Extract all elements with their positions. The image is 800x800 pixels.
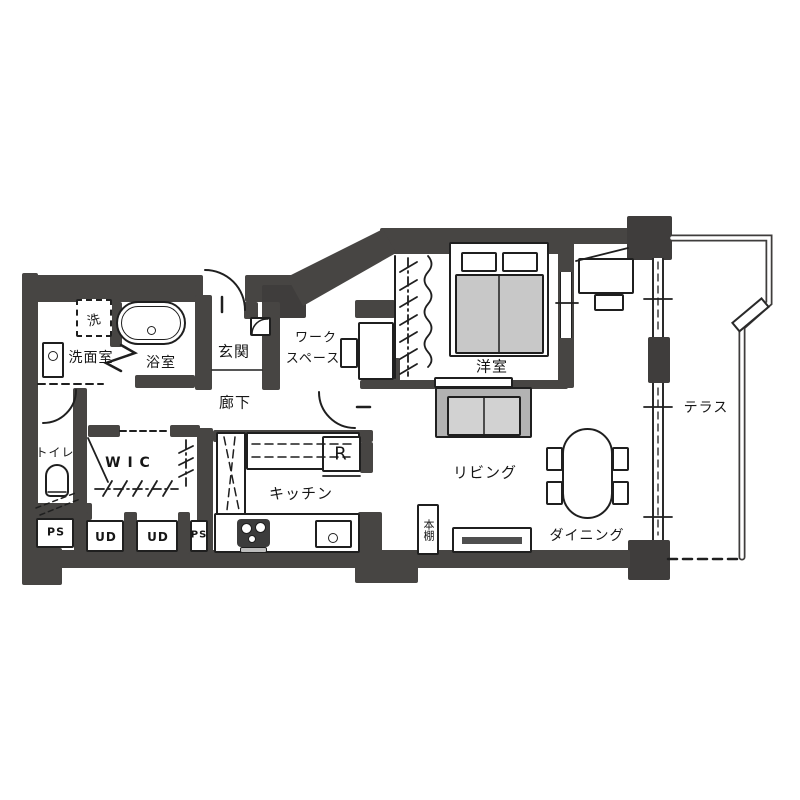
label-wic: W I C	[105, 455, 151, 471]
bed-pillow-left	[461, 252, 497, 272]
door-arc-toilet	[43, 390, 76, 423]
label-workspace-line2: スペース	[286, 348, 340, 367]
tv-board-inner	[462, 537, 522, 544]
label-ps-right: PS	[191, 530, 208, 541]
floor-plan: 洗面室 浴室 玄関 ワーク スペース 洋室 廊下 トイレ W I C キッチン …	[0, 0, 800, 800]
pillar-top-right	[627, 216, 672, 260]
terrace-window-lower	[652, 383, 664, 540]
nook-opening-band	[574, 244, 627, 257]
wic-hangers-vertical	[179, 446, 193, 477]
wall-div-ps-right	[178, 512, 190, 554]
wall-workspace-nib	[355, 300, 395, 318]
stove	[237, 519, 270, 547]
wic-hangers-horizontal	[103, 481, 172, 496]
closet-curtain-wave	[425, 256, 432, 367]
wall-kitchen-block	[358, 512, 382, 553]
wall-bath-entrance	[195, 295, 212, 390]
wall-kitchen-right	[360, 442, 373, 473]
wall-top-west	[22, 275, 203, 302]
label-terrace: テラス	[684, 397, 729, 417]
label-ud-right: UD	[147, 530, 169, 544]
label-kitchen: キッチン	[269, 483, 333, 504]
label-bookshelf: 本棚	[420, 519, 436, 541]
sink-drain	[328, 533, 338, 543]
plan-linework	[0, 0, 800, 800]
dining-chair-4	[612, 481, 629, 505]
wall-wic-top-left	[88, 425, 120, 437]
terrace-gate	[732, 298, 768, 331]
stove-base	[240, 547, 267, 553]
kitchen-tall-cabinet	[216, 432, 246, 515]
wall-partition-west	[360, 380, 436, 389]
wall-wic-top-right	[170, 425, 200, 437]
label-workspace-line1: ワーク	[295, 327, 337, 346]
wall-bottom-protrusion	[355, 550, 418, 583]
dining-chair-1	[546, 447, 563, 471]
toilet-bowl	[45, 464, 69, 497]
closet-hangers	[400, 262, 417, 374]
bedroom-window	[560, 272, 572, 338]
dining-chair-3	[612, 447, 629, 471]
door-arc-ldk	[319, 392, 355, 428]
shoe-cabinet	[250, 317, 271, 336]
washbasin-drain	[48, 351, 58, 361]
wall-bath-bottom	[135, 375, 195, 388]
label-bedroom: 洋室	[476, 356, 508, 377]
label-ps-left: PS	[47, 526, 65, 539]
stove-burner-1	[241, 523, 252, 534]
pillar-bottom-right	[628, 540, 670, 580]
label-toilet: トイレ	[35, 444, 74, 461]
bathtub-drain	[147, 326, 156, 335]
bed-blanket	[455, 274, 544, 354]
dining-chair-2	[546, 481, 563, 505]
stove-burner-2	[255, 522, 266, 533]
label-dining: ダイニング	[550, 525, 625, 545]
workspace-desk	[358, 322, 394, 380]
dining-table	[562, 428, 613, 519]
label-living: リビング	[453, 462, 517, 483]
nook-desk	[578, 258, 634, 294]
bed-pillow-right	[502, 252, 538, 272]
label-refrigerator: R	[334, 444, 348, 465]
stove-burner-3	[248, 535, 256, 543]
label-hallway: 廊下	[219, 392, 251, 413]
label-ud-left: UD	[95, 530, 117, 544]
wall-bottom-left-block	[22, 548, 62, 585]
workspace-chair	[340, 338, 358, 368]
nook-chair	[594, 294, 624, 311]
label-washroom: 洗面室	[69, 347, 114, 367]
label-bathroom: 浴室	[146, 352, 176, 372]
wall-toilet-right	[73, 388, 87, 515]
sofa-cushions	[447, 396, 521, 436]
terrace-window-upper	[652, 258, 664, 337]
label-entrance: 玄関	[218, 341, 250, 362]
pillar-terrace-mid	[648, 337, 670, 383]
wall-entrance-workspace	[262, 302, 280, 390]
